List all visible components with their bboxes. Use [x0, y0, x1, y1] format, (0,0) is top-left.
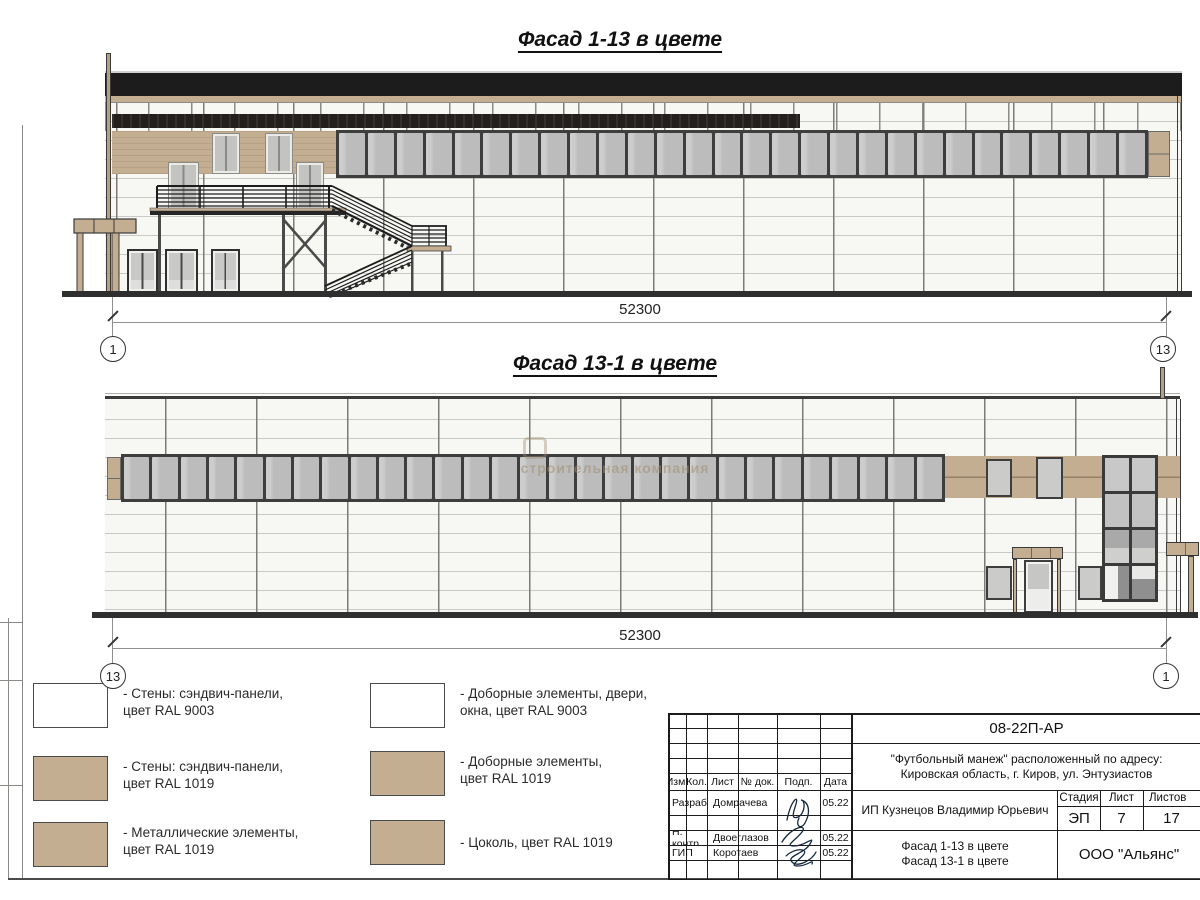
facade-2-band-window [1036, 457, 1063, 499]
tb-project-line: Кировская область, г. Киров, ул. Энтузиа… [901, 767, 1153, 782]
window-pane [351, 457, 376, 499]
facade-2-title: Фасад 13-1 в цвете [375, 352, 855, 376]
legend-label: - Металлические элементы, цвет RAL 1019 [123, 822, 298, 867]
legend-label: - Стены: сэндвич-панели, цвет RAL 1019 [123, 756, 283, 801]
facade-1-right-corner [1177, 96, 1182, 292]
facade-2-entrance-door [1024, 560, 1053, 613]
window-pane [407, 457, 432, 499]
glazing-cell [1105, 494, 1129, 527]
window-pane [294, 457, 319, 499]
legend-swatch [370, 683, 445, 728]
tb-name: Двоеглазов [709, 830, 775, 845]
legend-swatch [370, 751, 445, 796]
window-pane [124, 457, 149, 499]
legend-label: - Доборные элементы, цвет RAL 1019 [460, 751, 602, 796]
legend-item: - Металлические элементы, цвет RAL 1019 [33, 822, 298, 867]
window-pane [181, 457, 206, 499]
window-pane [975, 133, 1001, 175]
window-pane [266, 457, 291, 499]
glazing-cell [1105, 566, 1129, 599]
signature-scribble [778, 822, 822, 872]
facade-1-title: Фасад 1-13 в цвете [380, 28, 860, 52]
window-pane [917, 133, 943, 175]
glazing-cell [1132, 530, 1156, 563]
window-pane [888, 457, 913, 499]
tb-project-line: "Футбольный манеж" расположенный по адре… [891, 752, 1163, 767]
window-pane [152, 457, 177, 499]
tb-sheet-title-line: Фасад 13-1 в цвете [901, 854, 1008, 869]
window-pane [322, 457, 347, 499]
tb-col-podp: Подп. [777, 773, 820, 790]
legend-swatch [33, 683, 108, 728]
tb-col-izm: Изм. [668, 773, 686, 790]
facade-2-parapet [105, 393, 1180, 399]
window-pane [1090, 133, 1116, 175]
legend-item: - Доборные элементы, цвет RAL 1019 [370, 751, 602, 796]
legend-line: цвет RAL 1019 [460, 770, 602, 787]
tb-date: 05.22 [820, 790, 851, 815]
watermark-logo [523, 437, 547, 459]
window-pane [570, 133, 596, 175]
legend-label: - Цоколь, цвет RAL 1019 [460, 820, 613, 865]
frame-left-divider [0, 622, 22, 623]
legend-item: - Стены: сэндвич-панели, цвет RAL 1019 [33, 756, 283, 801]
frame-left-outer [8, 618, 9, 878]
facade-2-ground-line [92, 612, 1198, 618]
facade-2-small-window [1078, 566, 1102, 600]
tb-date: 05.22 [820, 845, 851, 860]
legend-line: цвет RAL 9003 [123, 702, 283, 719]
window-pane [715, 133, 741, 175]
window-pane [686, 133, 712, 175]
legend-swatch [33, 756, 108, 801]
legend-line: - Цоколь, цвет RAL 1019 [460, 834, 613, 851]
tb-col-ndok: № док. [738, 773, 777, 790]
legend-item: - Доборные элементы, двери, окна, цвет R… [370, 683, 647, 728]
tb-sheet-title-line: Фасад 1-13 в цвете [901, 839, 1008, 854]
facade-1-ribbon-end-tan [1148, 131, 1170, 177]
facade-2-curtain-wall [1102, 455, 1158, 602]
facade-1-dimension-line [113, 322, 1167, 323]
tb-stage-value: ЭП [1058, 806, 1100, 830]
window-pane [599, 133, 625, 175]
window-pane [512, 133, 538, 175]
facade-2-band-window [986, 459, 1012, 497]
facade-1-ground-line [62, 291, 1192, 297]
legend-item: - Цоколь, цвет RAL 1019 [370, 820, 613, 865]
window-pane [435, 457, 460, 499]
glazing-cell [1132, 494, 1156, 527]
tb-col-data: Дата [820, 773, 851, 790]
facade-2-dimension-value: 52300 [113, 627, 1167, 644]
tb-project-name: "Футбольный манеж" расположенный по адре… [853, 743, 1200, 790]
watermark-text: строительная компания [505, 460, 725, 476]
tb-sheets-label: Листов [1143, 790, 1200, 806]
facade-2-wall [105, 399, 1180, 612]
grid-axis-bubble: 13 [100, 663, 126, 689]
tb-client: ИП Кузнецов Владимир Юрьевич [853, 790, 1057, 830]
tb-name: Домрачева [709, 790, 775, 815]
tb-col-list: Лист [707, 773, 738, 790]
tb-doc-code: 08-22П-АР [853, 713, 1200, 743]
window-pane [541, 133, 567, 175]
tb-organization: ООО "Альянс" [1058, 830, 1200, 878]
window-pane [743, 133, 769, 175]
window-pane [917, 457, 942, 499]
facade-2-canopy-post [1013, 559, 1017, 613]
window-pane [801, 133, 827, 175]
facade-2-corner-column [1160, 367, 1165, 399]
legend-line: - Металлические элементы, [123, 824, 298, 841]
window-pane [859, 133, 885, 175]
legend-line: цвет RAL 1019 [123, 775, 283, 792]
window-pane [1003, 133, 1029, 175]
tb-sheet-label: Лист [1100, 790, 1143, 806]
window-pane [772, 133, 798, 175]
drawing-sheet: Фасад 1-13 в цвете [0, 0, 1200, 900]
window-pane [775, 457, 800, 499]
window-pane [747, 457, 772, 499]
facade-2-side-canopy-post [1188, 556, 1194, 614]
facade-2-dimension-line [113, 648, 1167, 649]
window-pane [237, 457, 262, 499]
tb-name: Коротаев [709, 845, 775, 860]
window-pane [379, 457, 404, 499]
tb-sheets-value: 17 [1143, 806, 1200, 830]
window-pane [804, 457, 829, 499]
window-pane [209, 457, 234, 499]
tb-date: 05.22 [820, 830, 851, 845]
window-pane [1032, 133, 1058, 175]
glazing-cell [1105, 530, 1129, 563]
window-pane [483, 133, 509, 175]
facade-2-canopy-post [1057, 559, 1061, 613]
facade-1-dimension-value: 52300 [113, 301, 1167, 318]
legend-label: - Стены: сэндвич-панели, цвет RAL 9003 [123, 683, 283, 728]
facade-1-sign-strip [112, 114, 800, 128]
tb-stage-label: Стадия [1058, 790, 1100, 806]
legend-line: окна, цвет RAL 9003 [460, 702, 647, 719]
window-pane [1119, 133, 1145, 175]
window-pane [830, 133, 856, 175]
facade-1-external-stair [55, 158, 460, 298]
window-pane [860, 457, 885, 499]
frame-left-divider [0, 785, 22, 786]
window-pane [657, 133, 683, 175]
frame-left-inner [22, 125, 23, 878]
grid-axis-bubble: 1 [1153, 663, 1179, 689]
window-pane [464, 457, 489, 499]
legend-swatch [370, 820, 445, 865]
facade-2-small-window [986, 566, 1012, 600]
tb-role: Н. контр. [668, 830, 710, 845]
glazing-cell [1105, 458, 1129, 491]
legend-line: - Стены: сэндвич-панели, [123, 758, 283, 775]
facade-2-ribbon-start-tan [107, 457, 121, 500]
legend-swatch [33, 822, 108, 867]
tb-col-kol: Кол. [686, 773, 707, 790]
facade-2-side-canopy [1166, 542, 1199, 556]
glazing-cell [1132, 458, 1156, 491]
window-pane [1061, 133, 1087, 175]
legend-line: - Стены: сэндвич-панели, [123, 685, 283, 702]
frame-left-divider [0, 680, 22, 681]
window-pane [888, 133, 914, 175]
tb-sheet-title: Фасад 1-13 в цвете Фасад 13-1 в цвете [853, 830, 1057, 878]
legend-line: - Доборные элементы, [460, 753, 602, 770]
facade-2-door-canopy [1012, 547, 1063, 559]
facade-1-tan-strip [105, 96, 1182, 103]
window-pane [946, 133, 972, 175]
legend-label: - Доборные элементы, двери, окна, цвет R… [460, 683, 647, 728]
grid-axis-bubble: 13 [1150, 336, 1176, 362]
legend-line: - Доборные элементы, двери, [460, 685, 647, 702]
grid-axis-bubble: 1 [100, 336, 126, 362]
legend-item: - Стены: сэндвич-панели, цвет RAL 9003 [33, 683, 283, 728]
facade-2-right-corner [1176, 399, 1181, 613]
window-pane [628, 133, 654, 175]
legend-line: цвет RAL 1019 [123, 841, 298, 858]
glazing-cell [1132, 566, 1156, 599]
window-pane [832, 457, 857, 499]
tb-role: ГИП [668, 845, 710, 860]
tb-role: Разраб. [668, 790, 707, 815]
tb-sheet-value: 7 [1100, 806, 1143, 830]
facade-1-roof-band [105, 71, 1182, 96]
